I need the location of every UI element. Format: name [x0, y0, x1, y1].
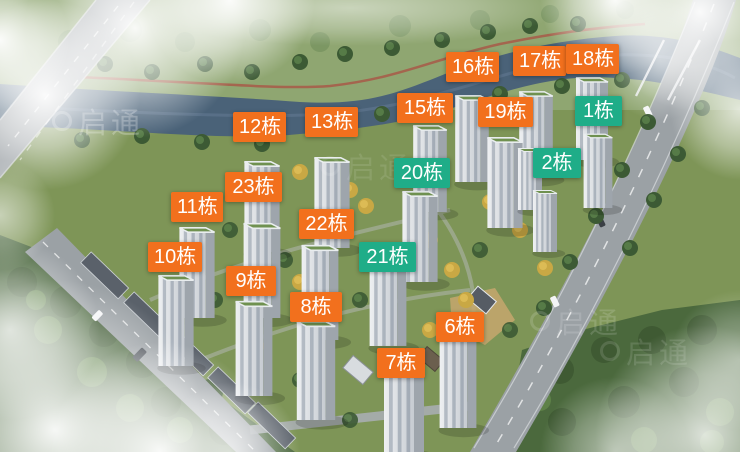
building-label-21[interactable]: 21栋 — [359, 242, 416, 272]
building-label-18[interactable]: 18栋 — [566, 44, 619, 74]
building-label-20[interactable]: 20栋 — [394, 158, 450, 188]
building-label-7[interactable]: 7栋 — [377, 348, 425, 378]
building-label-16[interactable]: 16栋 — [446, 52, 499, 82]
building-label-8[interactable]: 8栋 — [290, 292, 342, 322]
building-label-17[interactable]: 17栋 — [513, 46, 566, 76]
building-label-6[interactable]: 6栋 — [436, 312, 484, 342]
building-label-23[interactable]: 23栋 — [225, 172, 282, 202]
building-label-12[interactable]: 12栋 — [233, 112, 286, 142]
building-label-13[interactable]: 13栋 — [305, 107, 358, 137]
building-label-22[interactable]: 22栋 — [299, 209, 354, 239]
building-label-11[interactable]: 11栋 — [171, 192, 223, 222]
building-label-10[interactable]: 10栋 — [148, 242, 202, 272]
aerial-render — [0, 0, 740, 452]
building-label-15[interactable]: 15栋 — [397, 93, 453, 123]
building-label-9[interactable]: 9栋 — [226, 266, 276, 296]
building-label-2[interactable]: 2栋 — [533, 148, 581, 178]
building-label-1[interactable]: 1栋 — [575, 96, 622, 126]
building-distribution-map: 启通 启通 启通 启通 16栋 17栋 18栋 15栋 19栋 1栋 12栋 1… — [0, 0, 740, 452]
building-label-19[interactable]: 19栋 — [478, 97, 533, 127]
